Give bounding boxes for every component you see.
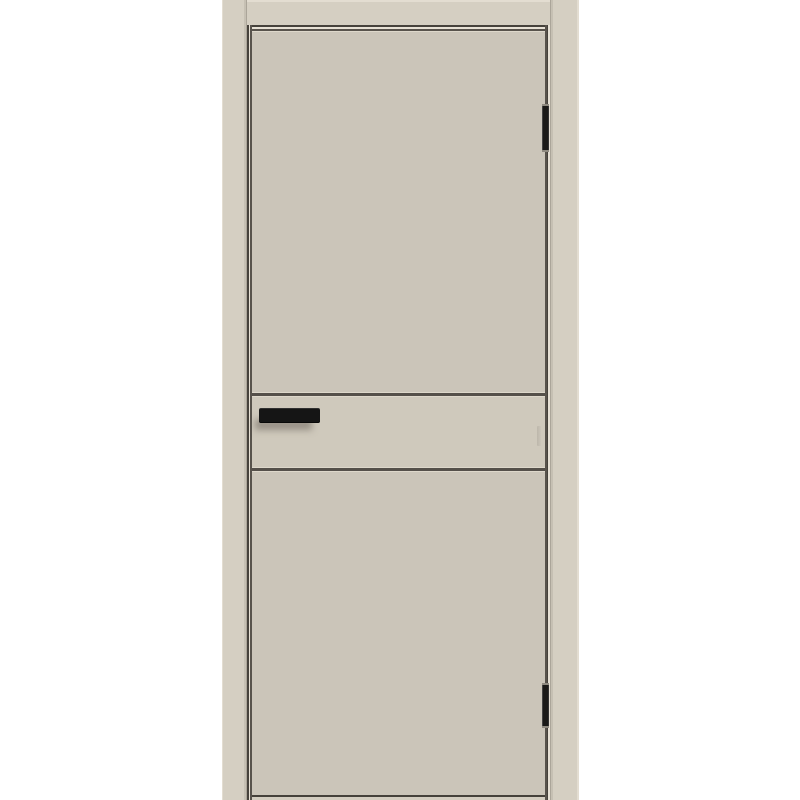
door-frame-left-casing: [222, 0, 246, 800]
door-latch-strike: [537, 426, 541, 446]
door-hinge-top: [542, 104, 549, 152]
door-hinge-bottom: [542, 683, 549, 728]
door-product-image: [0, 0, 800, 800]
door-groove-upper: [252, 392, 545, 397]
door-frame-head-casing: [246, 0, 551, 25]
door-groove-lower: [252, 467, 545, 472]
door-handle: [259, 408, 320, 423]
door-frame-right-casing: [551, 0, 579, 800]
